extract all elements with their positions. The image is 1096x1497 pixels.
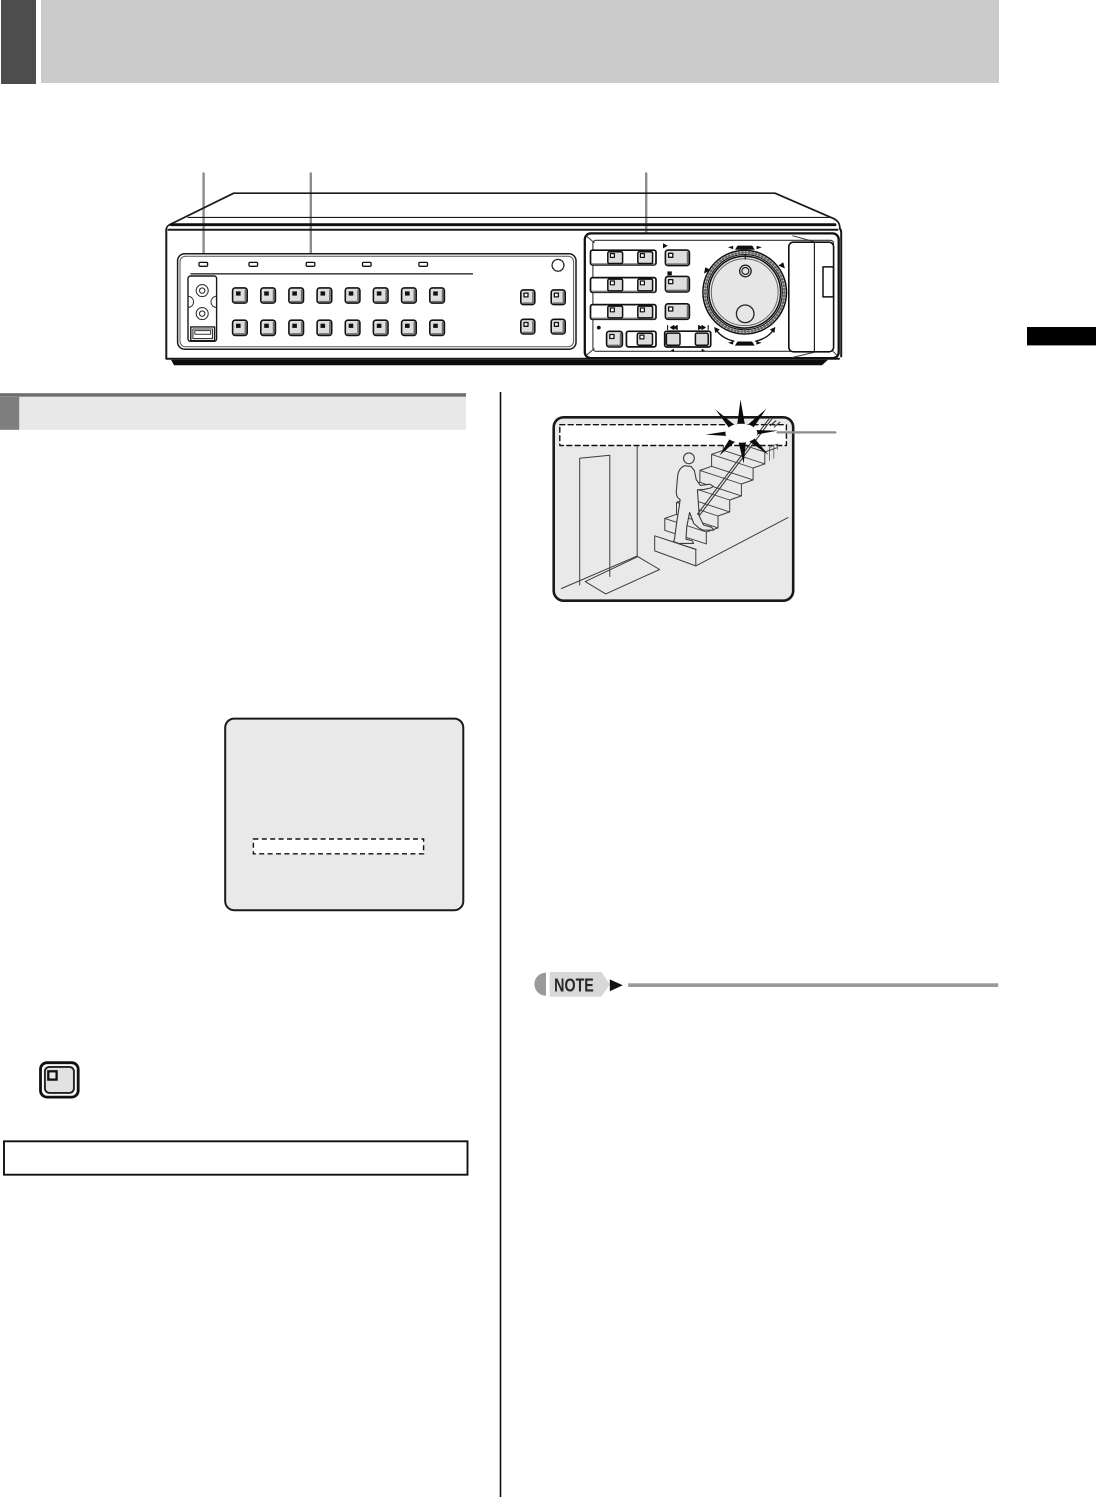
svg-text:NOTE: NOTE [554,976,594,996]
